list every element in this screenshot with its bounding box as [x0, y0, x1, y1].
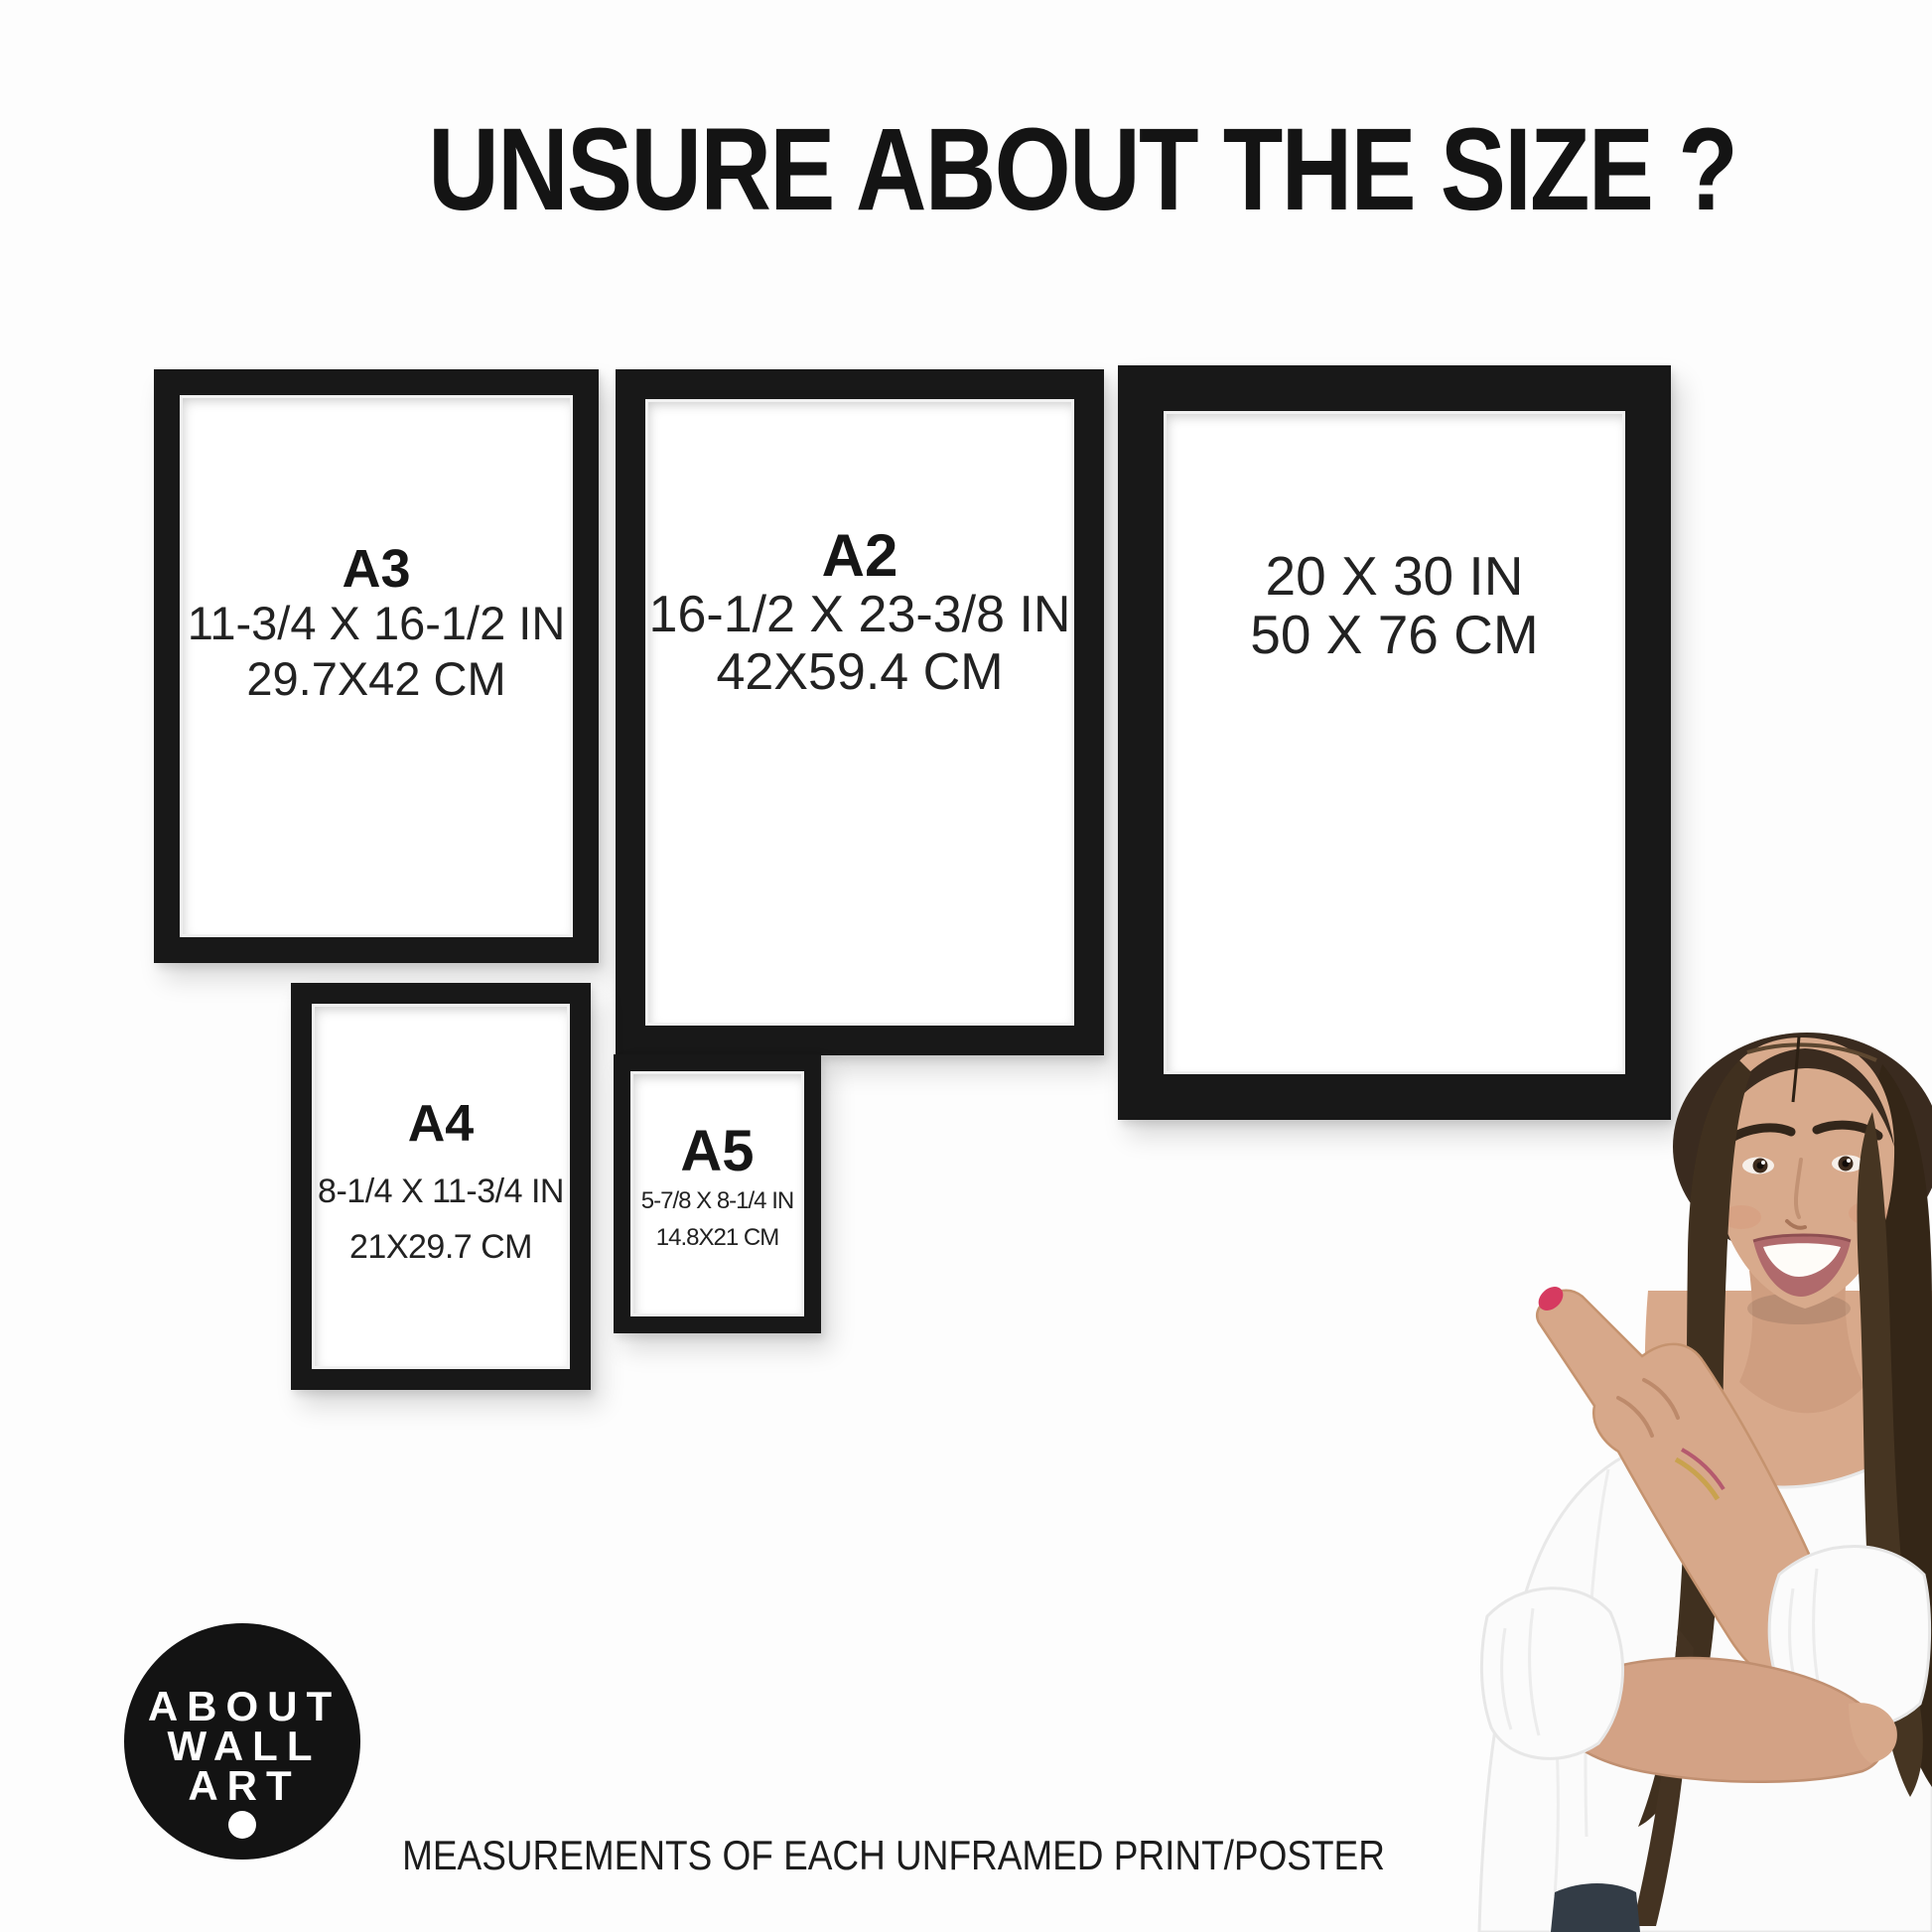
frame-a3-size-name: A3 — [180, 542, 573, 596]
frame-a2-mat — [645, 399, 1074, 1026]
frame-a5: A5 5-7/8 X 8-1/4 IN 14.8X21 CM — [614, 1054, 821, 1333]
frame-a3-labels: A3 11-3/4 X 16-1/2 IN 29.7X42 CM — [180, 542, 573, 707]
brand-logo-circle: ABOUT WALL ART — [124, 1623, 360, 1860]
frame-a5-labels: A5 5-7/8 X 8-1/4 IN 14.8X21 CM — [630, 1125, 804, 1256]
frame-a5-size-cm: 14.8X21 CM — [630, 1219, 804, 1256]
frame-20x30-mat — [1164, 411, 1625, 1074]
brand-logo-line-3: ART — [184, 1766, 300, 1806]
frame-a3: A3 11-3/4 X 16-1/2 IN 29.7X42 CM — [154, 369, 599, 963]
frame-a4-size-cm: 21X29.7 CM — [312, 1219, 570, 1275]
brand-logo-line-1: ABOUT — [144, 1687, 341, 1726]
woman-pointing-photo — [1380, 1033, 1932, 1932]
frame-a5-size-inches: 5-7/8 X 8-1/4 IN — [630, 1182, 804, 1219]
frame-a4-size-inches: 8-1/4 X 11-3/4 IN — [312, 1164, 570, 1219]
frame-a4-labels: A4 8-1/4 X 11-3/4 IN 21X29.7 CM — [312, 1098, 570, 1275]
frame-20x30-size-inches: 20 X 30 IN — [1164, 547, 1625, 606]
frame-20x30-labels: 20 X 30 IN 50 X 76 CM — [1164, 547, 1625, 664]
frame-20x30: 20 X 30 IN 50 X 76 CM — [1118, 365, 1671, 1120]
footer-caption: MEASUREMENTS OF EACH UNFRAMED PRINT/POST… — [402, 1832, 1385, 1879]
frame-a2-labels: A2 16-1/2 X 23-3/8 IN 42X59.4 CM — [645, 526, 1074, 701]
frame-a2-size-inches: 16-1/2 X 23-3/8 IN — [645, 586, 1074, 643]
frame-a2: A2 16-1/2 X 23-3/8 IN 42X59.4 CM — [616, 369, 1104, 1055]
frame-a4: A4 8-1/4 X 11-3/4 IN 21X29.7 CM — [291, 983, 591, 1390]
frame-a4-size-name: A4 — [312, 1098, 570, 1150]
frame-a2-size-cm: 42X59.4 CM — [645, 643, 1074, 701]
frame-a5-size-name: A5 — [630, 1125, 804, 1178]
frame-a3-size-cm: 29.7X42 CM — [180, 651, 573, 707]
brand-logo-line-2: WALL — [164, 1726, 322, 1766]
page-title: UNSURE ABOUT THE SIZE ? — [428, 115, 1587, 224]
jeans — [1551, 1883, 1640, 1932]
brand-logo-dot — [228, 1811, 256, 1839]
size-guide-infographic: UNSURE ABOUT THE SIZE ? A3 11-3/4 X 16-1… — [0, 0, 1932, 1932]
frame-a2-size-name: A2 — [645, 526, 1074, 586]
frame-20x30-size-cm: 50 X 76 CM — [1164, 606, 1625, 664]
frame-a3-size-inches: 11-3/4 X 16-1/2 IN — [180, 596, 573, 651]
